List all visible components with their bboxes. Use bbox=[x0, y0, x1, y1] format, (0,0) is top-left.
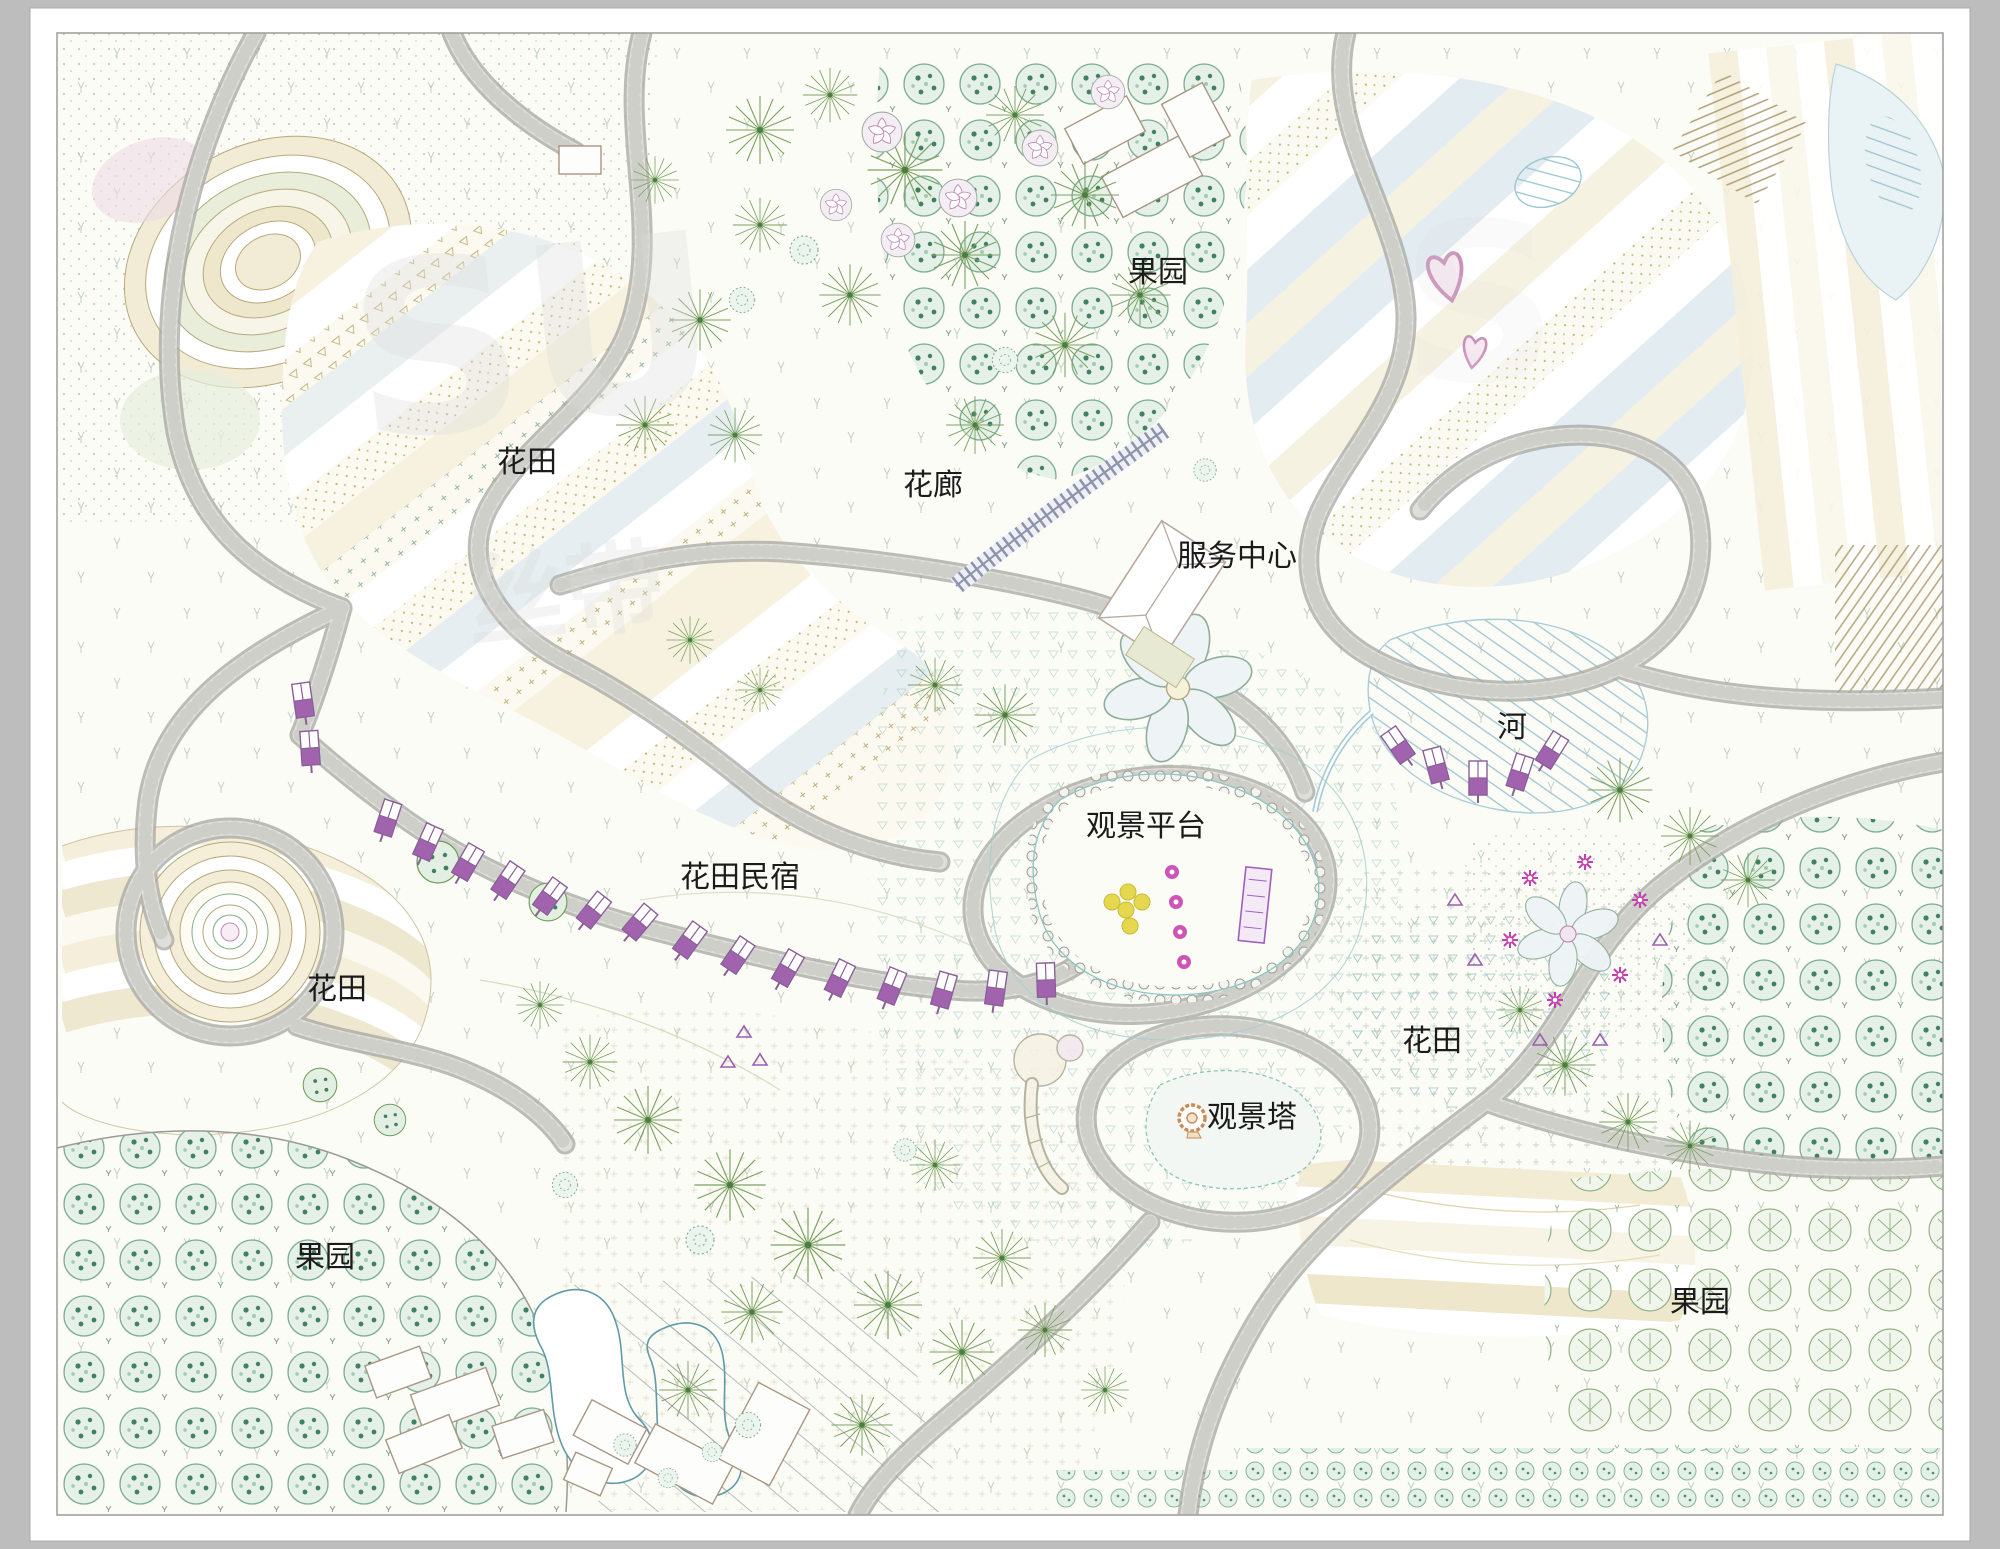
framed-plan-page: SU 丝带 S 果园 花田 花廊 服务中心 河 观景平台 花田民宿 花田 花田 … bbox=[0, 0, 2000, 1549]
orchard-bottom-right-area bbox=[1544, 1168, 1943, 1451]
label-river: 河 bbox=[1497, 710, 1527, 745]
label-flower-corridor: 花廊 bbox=[903, 468, 963, 503]
label-flower-field-right: 花田 bbox=[1402, 1024, 1462, 1059]
label-viewing-platform: 观景平台 bbox=[1086, 809, 1206, 844]
plan-content: SU 丝带 S 果园 花田 花廊 服务中心 河 观景平台 花田民宿 花田 花田 … bbox=[0, 0, 2000, 1515]
watermark-s: S bbox=[1400, 176, 1558, 432]
label-viewing-tower: 观景塔 bbox=[1207, 1100, 1297, 1135]
site-plan-canvas: SU 丝带 S 果园 花田 花廊 服务中心 河 观景平台 花田民宿 花田 花田 … bbox=[0, 0, 2000, 1549]
label-orchard-top: 果园 bbox=[1128, 255, 1188, 290]
label-homestay: 花田民宿 bbox=[680, 860, 800, 895]
label-orchard-bottom-right: 果园 bbox=[1670, 1285, 1730, 1320]
label-service-center: 服务中心 bbox=[1177, 539, 1297, 574]
label-flower-field-upper: 花田 bbox=[497, 445, 557, 480]
label-orchard-bottom-left: 果园 bbox=[295, 1240, 355, 1275]
orchard-right-area bbox=[1662, 817, 1943, 1169]
watermark-ribbon: 丝带 bbox=[460, 527, 671, 664]
label-flower-field-left: 花田 bbox=[307, 972, 367, 1007]
